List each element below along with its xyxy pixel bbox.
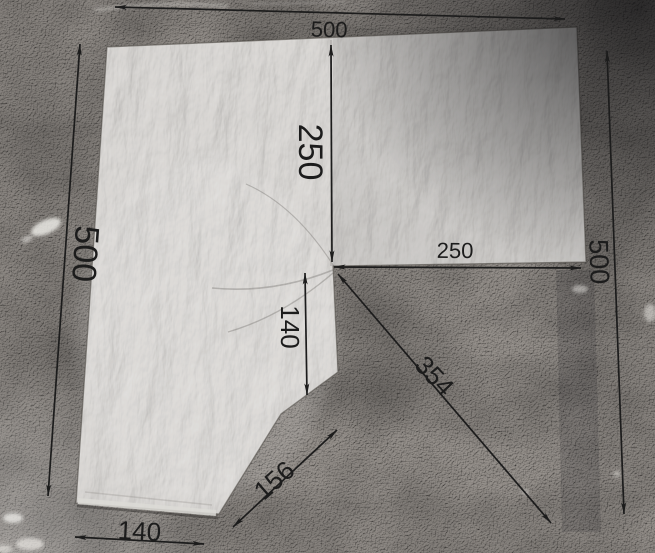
dim-label-top-width: 500 bbox=[311, 17, 348, 43]
annotated-measurement-photo: 500 250 500 250 500 140 354 156 140 bbox=[0, 0, 655, 553]
dim-label-bottom-width: 140 bbox=[117, 515, 162, 547]
dim-label-right-inset: 250 bbox=[437, 238, 474, 263]
dim-label-left-height: 500 bbox=[64, 224, 106, 283]
dim-label-notch-depth: 140 bbox=[275, 305, 305, 348]
dim-line-center-drop bbox=[331, 45, 332, 262]
dimensioned-sheet-figure: 500 250 500 250 500 140 354 156 140 bbox=[0, 0, 655, 553]
dim-label-right-height: 500 bbox=[583, 239, 615, 285]
dim-line-right-inset bbox=[334, 267, 581, 268]
dim-label-center-drop: 250 bbox=[291, 124, 329, 181]
